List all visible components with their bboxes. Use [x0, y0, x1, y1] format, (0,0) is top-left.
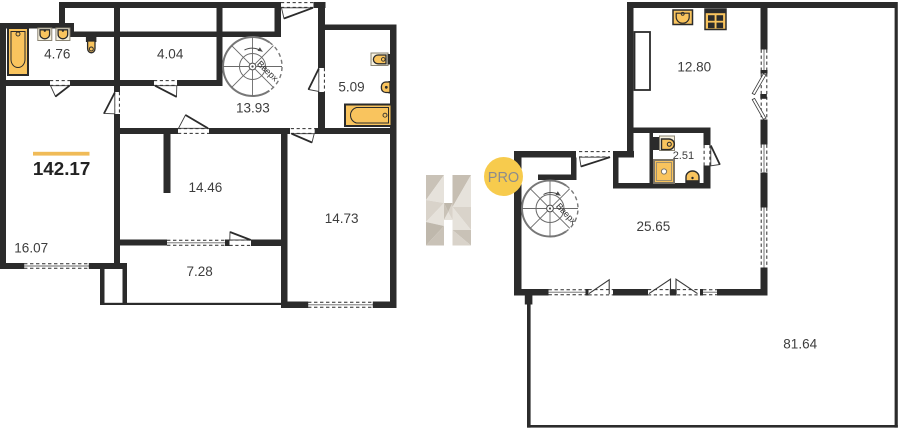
svg-text:25.65: 25.65: [637, 219, 671, 234]
svg-text:13.93: 13.93: [236, 101, 270, 116]
svg-text:81.64: 81.64: [783, 337, 817, 352]
svg-text:14.73: 14.73: [325, 211, 359, 226]
svg-text:4.76: 4.76: [44, 46, 70, 61]
svg-text:4.04: 4.04: [157, 47, 184, 62]
svg-text:5.09: 5.09: [338, 79, 364, 94]
svg-text:142.17: 142.17: [33, 158, 90, 179]
svg-text:14.46: 14.46: [189, 180, 223, 195]
svg-text:PRO: PRO: [488, 170, 519, 186]
svg-text:16.07: 16.07: [14, 241, 48, 256]
svg-text:2.51: 2.51: [673, 150, 694, 162]
svg-text:7.28: 7.28: [186, 264, 212, 279]
svg-text:12.80: 12.80: [677, 60, 711, 75]
